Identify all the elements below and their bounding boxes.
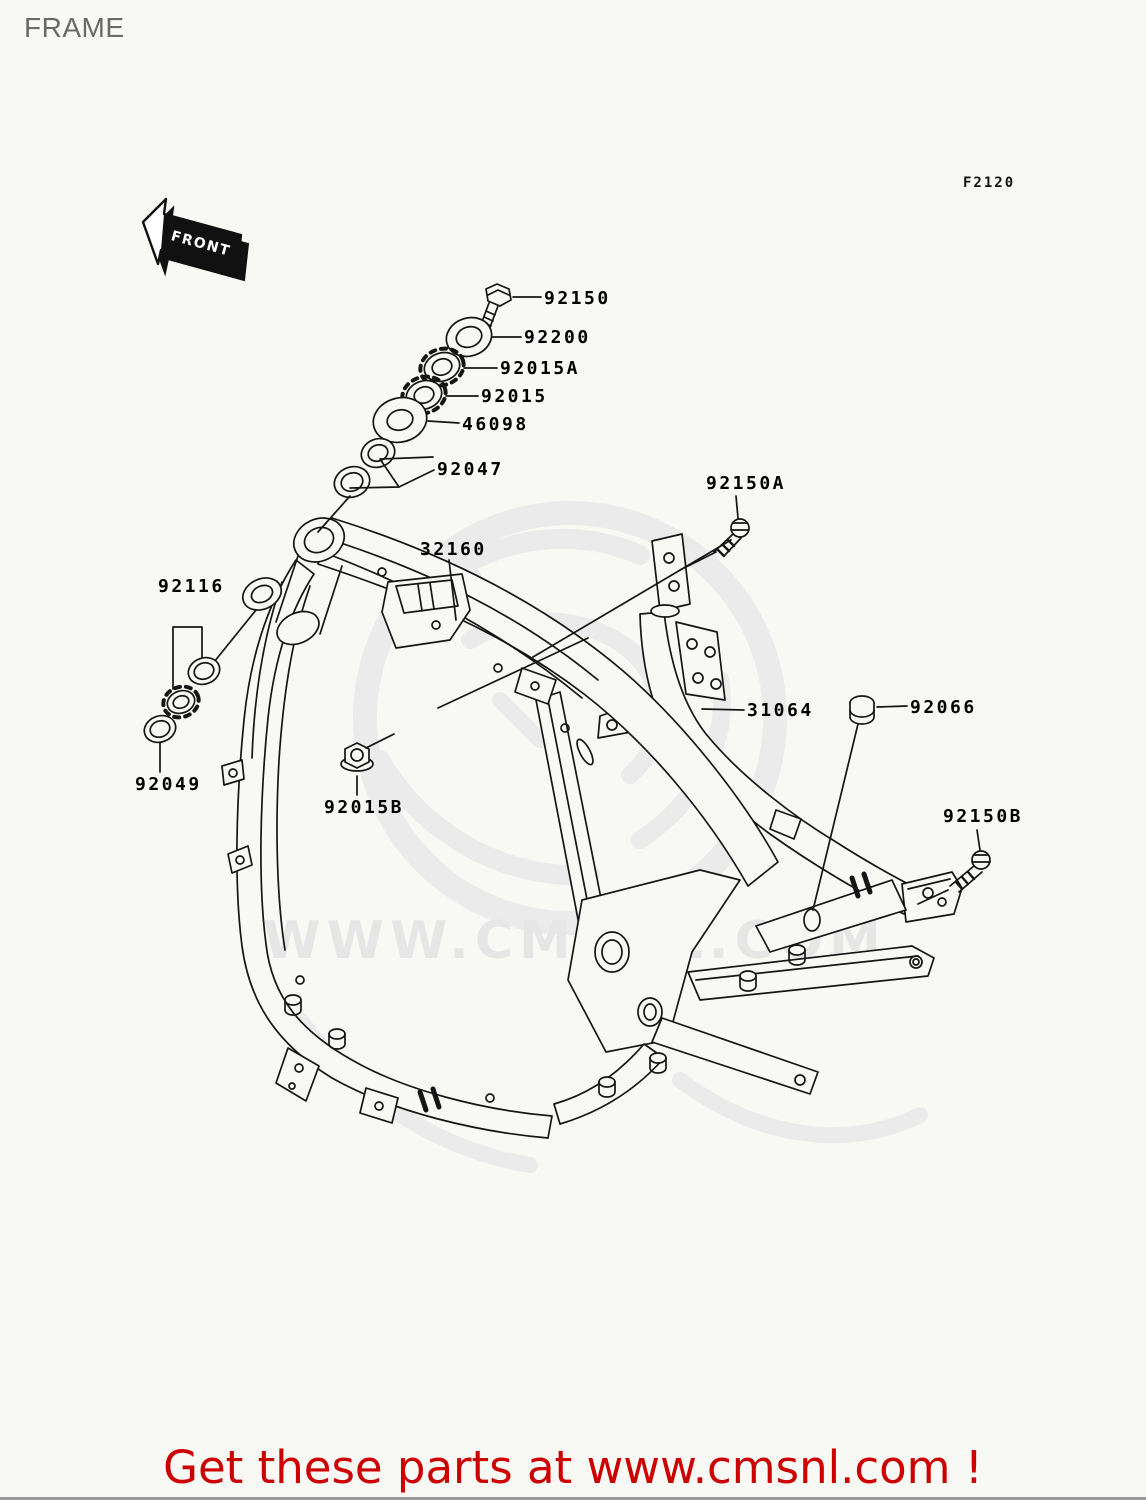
part-label-92015A[interactable]: 92015A	[500, 358, 580, 379]
part-label-92015[interactable]: 92015	[481, 386, 548, 407]
footer-banner[interactable]: Get these parts at www.cmsnl.com !	[0, 1441, 1146, 1494]
parts-diagram-page: FRAME F2120 WWW.CMSNL.COM FRONT	[0, 0, 1146, 1500]
part-label-92015B[interactable]: 92015B	[324, 797, 404, 818]
front-arrow-icon: FRONT	[143, 199, 248, 280]
part-label-92150B[interactable]: 92150B	[943, 806, 1023, 827]
part-label-46098[interactable]: 46098	[462, 414, 529, 435]
part-label-31064[interactable]: 31064	[747, 700, 814, 721]
frame-diagram-image: WWW.CMSNL.COM FRONT	[0, 0, 1146, 1500]
part-label-92200[interactable]: 92200	[524, 327, 591, 348]
part-label-92066[interactable]: 92066	[910, 697, 977, 718]
part-label-92150[interactable]: 92150	[544, 288, 611, 309]
frame-drawing	[141, 284, 990, 1138]
part-label-92049[interactable]: 92049	[135, 774, 202, 795]
part-label-92116[interactable]: 92116	[158, 576, 225, 597]
part-label-32160[interactable]: 32160	[420, 539, 487, 560]
part-label-92150A[interactable]: 92150A	[706, 473, 786, 494]
part-label-92047[interactable]: 92047	[437, 459, 504, 480]
